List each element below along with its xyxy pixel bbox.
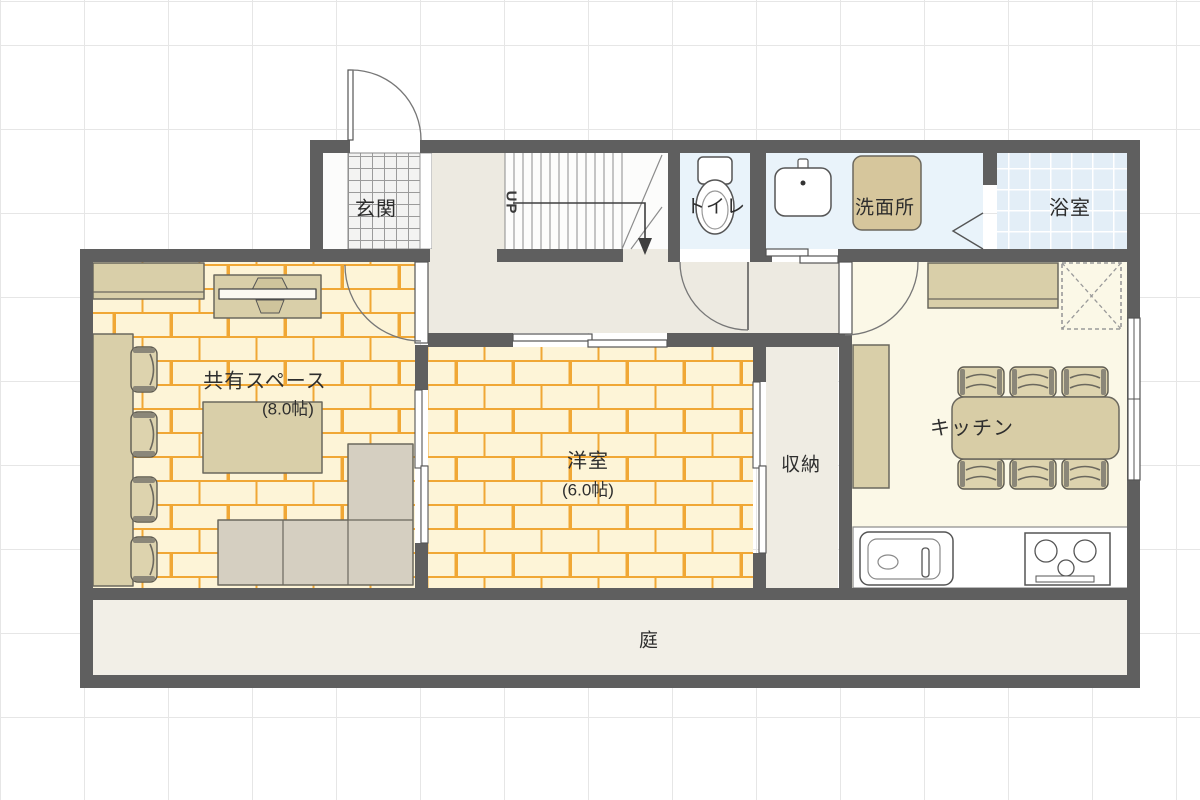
- desk-chair: [131, 537, 157, 582]
- room-label-garden: 庭: [639, 626, 659, 653]
- corridor-floor: [428, 262, 852, 333]
- dining-chair: [1010, 367, 1056, 397]
- kitchen-sink: [860, 532, 953, 585]
- desk-chair: [131, 412, 157, 457]
- floorplan-drawing: [0, 0, 1200, 800]
- dining-chair: [958, 459, 1004, 489]
- room-label-bathroom: 浴室: [1049, 192, 1091, 221]
- room-label-kitchen: キッチン: [930, 412, 1014, 441]
- shared-western-sliding-door: [415, 390, 428, 543]
- tall-cabinet: [853, 345, 889, 488]
- room-label-toilet: トイレ: [686, 192, 746, 219]
- room-size-shared: (8.0帖): [262, 395, 314, 420]
- genkan-side-floor: [323, 153, 348, 249]
- room-label-storage: 収納: [781, 450, 821, 477]
- room-label-western: 洋室: [567, 445, 609, 474]
- genkan-step: [420, 153, 432, 249]
- wall-shelf: [93, 263, 204, 299]
- dining-chair: [1062, 459, 1108, 489]
- western-room-window: [513, 334, 667, 347]
- floorplan-canvas: 玄関 トイレ 洗面所 浴室 共有スペース (8.0帖) 洋室 (6.0帖) 収納…: [0, 0, 1200, 800]
- kitchen-counter: [928, 263, 1058, 308]
- hall-floor: [432, 153, 505, 262]
- kitchen-window: [1128, 318, 1140, 480]
- stairs-direction-label: UP: [503, 191, 520, 216]
- room-size-western: (6.0帖): [562, 476, 614, 501]
- dining-chair: [1010, 459, 1056, 489]
- desk-chair: [131, 477, 157, 522]
- entrance-door: [348, 70, 421, 140]
- washroom-sliding-door: [766, 249, 838, 263]
- dining-chair: [958, 367, 1004, 397]
- room-label-shared: 共有スペース: [203, 365, 327, 394]
- stove: [1025, 533, 1110, 585]
- tv-board: [214, 275, 321, 318]
- hall-passage: [430, 249, 497, 262]
- study-desk: [93, 334, 133, 586]
- washbasin: [775, 159, 831, 216]
- dining-chair: [1062, 367, 1108, 397]
- garden-floor: [93, 600, 1127, 675]
- desk-chair: [131, 347, 157, 392]
- room-label-washroom: 洗面所: [855, 193, 915, 220]
- storage-sliding-door: [753, 382, 766, 553]
- room-label-genkan: 玄関: [355, 193, 397, 222]
